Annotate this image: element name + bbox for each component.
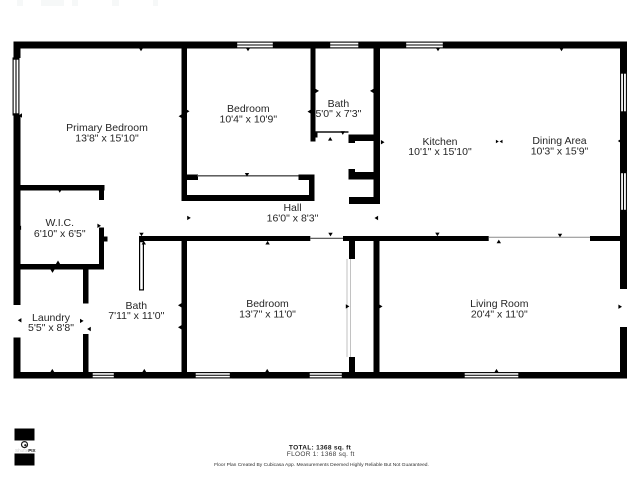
svg-text:10'1" x 15'10": 10'1" x 15'10" — [408, 146, 472, 158]
svg-text:6'10" x 6'5": 6'10" x 6'5" — [34, 228, 86, 240]
svg-text:7'11" x 11'0": 7'11" x 11'0" — [108, 310, 164, 322]
svg-text:13'7" x 11'0": 13'7" x 11'0" — [239, 309, 296, 321]
svg-text:PIX: PIX — [28, 448, 36, 453]
svg-text:FLOOR 1: 1368 sq. ft: FLOOR 1: 1368 sq. ft — [287, 451, 355, 458]
svg-text:Floor Plan Created By Cubicasa: Floor Plan Created By Cubicasa App. Meas… — [214, 462, 429, 468]
svg-text:13'8" x 15'10": 13'8" x 15'10" — [75, 132, 139, 144]
svg-text:10'4" x 10'9": 10'4" x 10'9" — [220, 113, 278, 125]
svg-text:20'4" x 11'0": 20'4" x 11'0" — [471, 308, 528, 320]
svg-text:5'5" x 8'8": 5'5" x 8'8" — [28, 322, 74, 334]
svg-text:5'0" x 7'3": 5'0" x 7'3" — [315, 108, 361, 120]
svg-text:16'0" x 8'3": 16'0" x 8'3" — [267, 212, 319, 224]
svg-text:10'3" x 15'9": 10'3" x 15'9" — [531, 146, 589, 158]
